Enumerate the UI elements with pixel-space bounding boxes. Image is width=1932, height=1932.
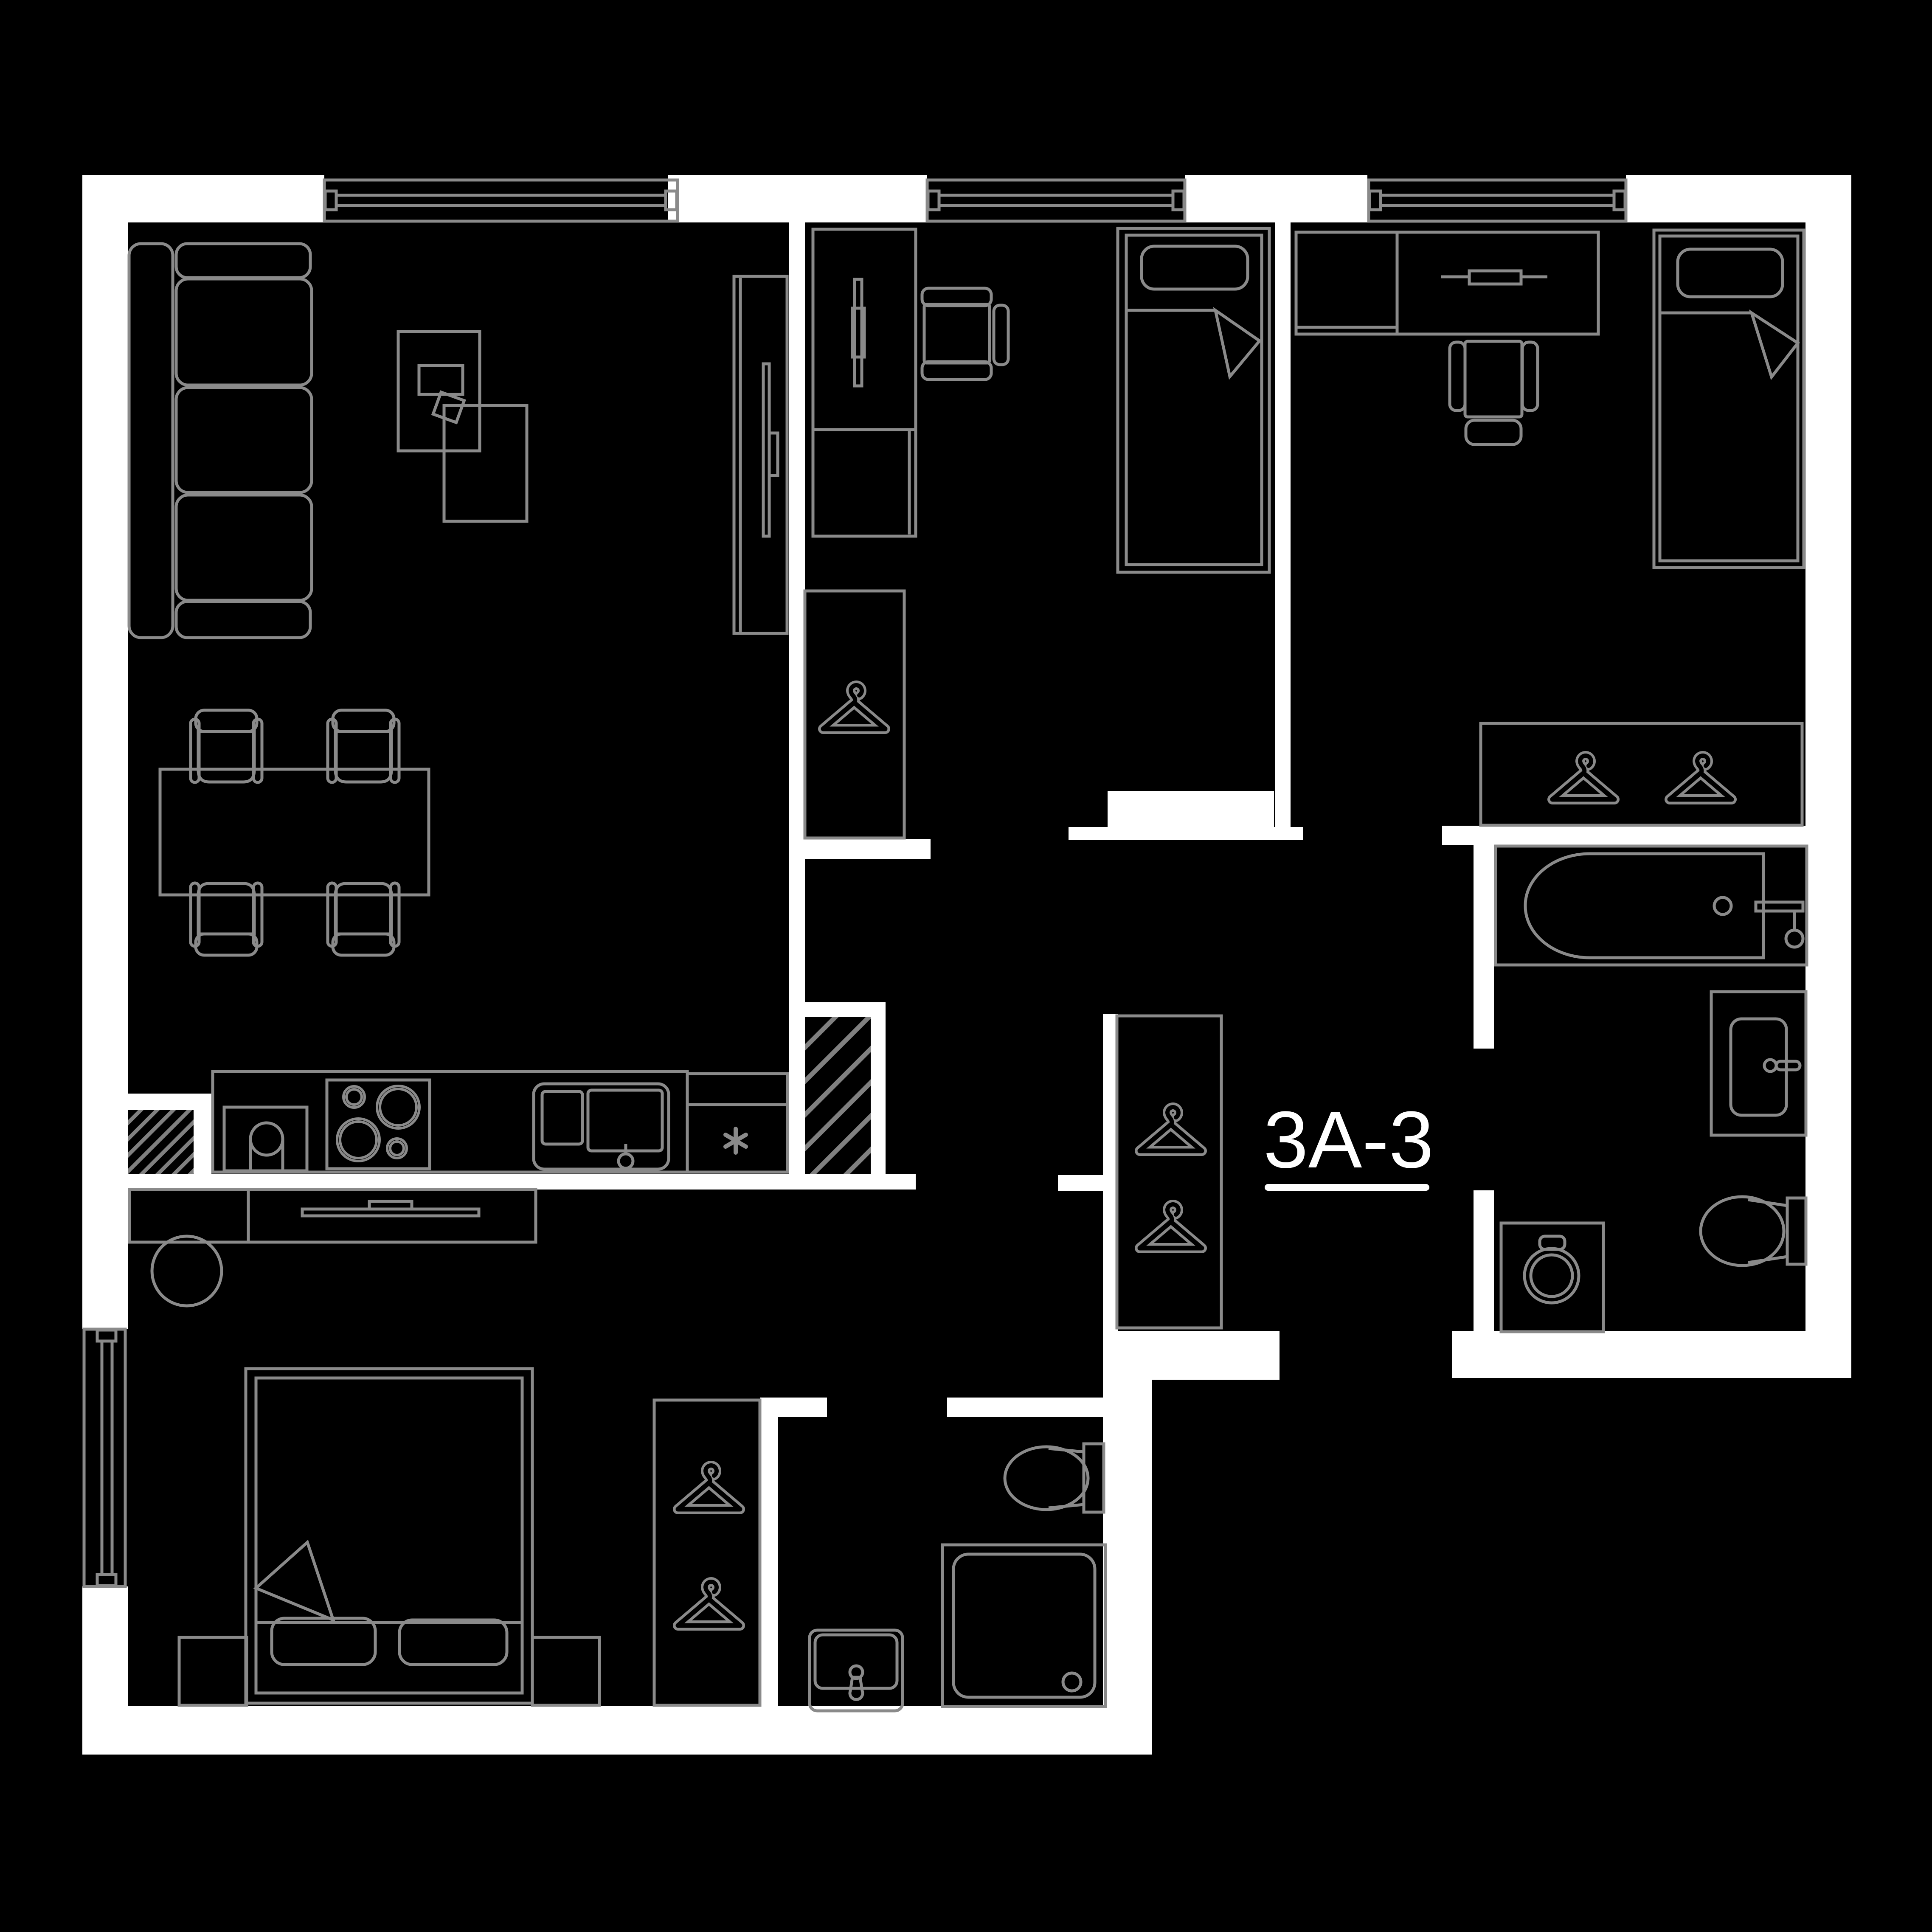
svg-text:3A-3: 3A-3 (1263, 1095, 1434, 1185)
